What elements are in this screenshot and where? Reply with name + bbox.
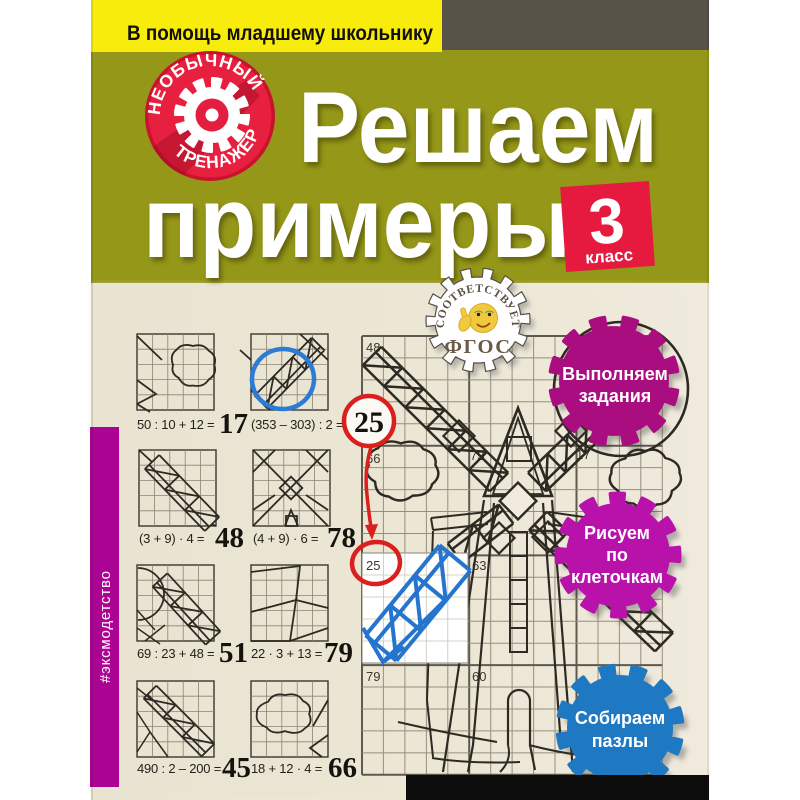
svg-text:66: 66 <box>328 752 357 784</box>
svg-text:#эксмодетство: #эксмодетство <box>97 570 114 683</box>
svg-text:(4 + 9) · 6 =: (4 + 9) · 6 = <box>253 531 318 546</box>
svg-text:48: 48 <box>215 522 244 554</box>
svg-text:примеры: примеры <box>143 167 571 279</box>
svg-text:48: 48 <box>366 340 380 355</box>
svg-text:51: 51 <box>219 637 248 669</box>
svg-text:25: 25 <box>366 558 380 573</box>
svg-text:класс: класс <box>585 245 634 267</box>
svg-text:79: 79 <box>324 637 353 669</box>
svg-text:В помощь младшему школьнику: В помощь младшему школьнику <box>127 21 433 45</box>
svg-text:пазлы: пазлы <box>592 731 649 751</box>
svg-text:17: 17 <box>219 408 248 440</box>
svg-text:ФГОС: ФГОС <box>444 336 511 358</box>
svg-text:Рисуем: Рисуем <box>584 523 650 543</box>
svg-text:50 : 10 + 12 =: 50 : 10 + 12 = <box>137 417 214 432</box>
svg-text:18 + 12 · 4 =: 18 + 12 · 4 = <box>251 761 322 776</box>
svg-text:(353 – 303) : 2 =: (353 – 303) : 2 = <box>251 417 343 432</box>
svg-text:490 : 2 – 200 =: 490 : 2 – 200 = <box>137 761 221 776</box>
svg-text:клеточкам: клеточкам <box>571 567 663 587</box>
svg-text:(3 + 9) · 4 =: (3 + 9) · 4 = <box>139 531 204 546</box>
svg-text:45: 45 <box>222 752 251 784</box>
svg-text:25: 25 <box>354 406 384 439</box>
svg-text:69 : 23 + 48 =: 69 : 23 + 48 = <box>137 646 214 661</box>
svg-text:79: 79 <box>366 669 380 684</box>
svg-text:78: 78 <box>327 522 356 554</box>
svg-text:22 · 3 + 13 =: 22 · 3 + 13 = <box>251 646 322 661</box>
svg-text:Выполняем: Выполняем <box>562 364 668 384</box>
svg-text:задания: задания <box>579 386 652 406</box>
svg-text:по: по <box>606 545 628 565</box>
svg-text:Собираем: Собираем <box>575 708 665 728</box>
